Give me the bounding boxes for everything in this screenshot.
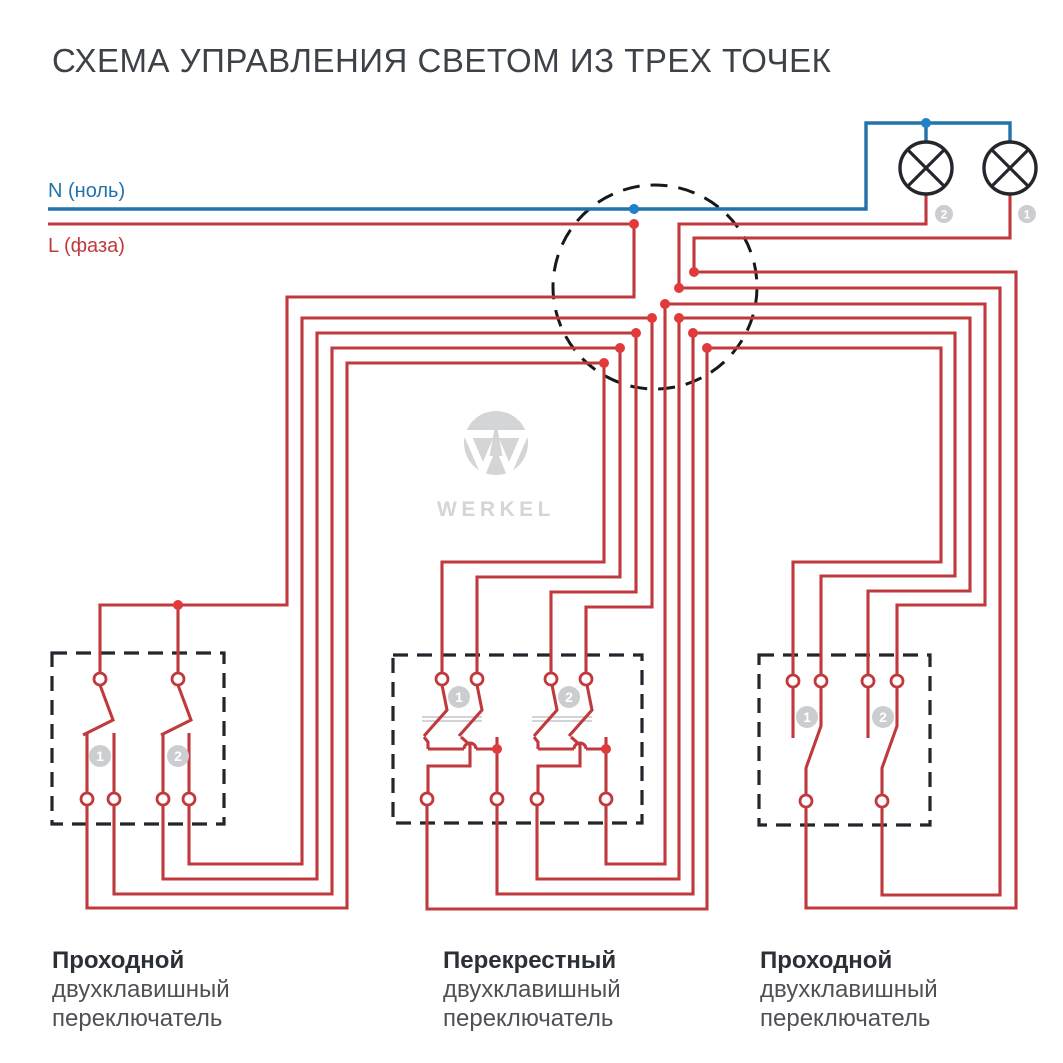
junction-dot (615, 343, 625, 353)
left-switch-caption-line2: двухклавишный (52, 975, 230, 1004)
number-badge-label: 1 (803, 709, 811, 725)
right-switch-caption-line1: Проходной (760, 946, 938, 975)
junction-dot (629, 219, 639, 229)
left-switch-caption-line3: переключатель (52, 1004, 230, 1033)
number-badge-label: 1 (1024, 207, 1031, 221)
terminal (545, 673, 557, 685)
terminal (891, 675, 903, 687)
neutral-wire-label: N (ноль) (48, 180, 125, 203)
phase-wire (534, 737, 538, 749)
middle-switch-caption-line1: Перекрестный (443, 946, 621, 975)
number-badge-label: 1 (96, 748, 104, 764)
middle-switch-caption: Перекрестный двухклавишный переключатель (443, 946, 621, 1033)
phase-wire-label: L (фаза) (48, 235, 125, 258)
werkel-logo-text: WERKEL (437, 498, 555, 521)
phase-wire (424, 685, 447, 736)
neutral-wire (48, 123, 1010, 209)
junction-dot (702, 343, 712, 353)
junction-dot-neutral (629, 204, 639, 214)
middle-switch-caption-line2: двухклавишный (443, 975, 621, 1004)
junction-dot (492, 744, 502, 754)
terminal (94, 673, 106, 685)
terminal (862, 675, 874, 687)
phase-wire (693, 333, 955, 675)
terminal (815, 675, 827, 687)
junction-dot (689, 267, 699, 277)
phase-wire (161, 685, 191, 735)
terminal (491, 793, 503, 805)
number-badge-label: 2 (879, 709, 887, 725)
terminal (81, 793, 93, 805)
terminal (800, 795, 812, 807)
junction-dot (674, 313, 684, 323)
phase-wire (665, 304, 985, 675)
number-badge-label: 1 (455, 689, 463, 705)
junction-dot (647, 313, 657, 323)
junction-dot (173, 600, 183, 610)
terminal (183, 793, 195, 805)
phase-wire (534, 685, 557, 736)
phase-wire (551, 333, 636, 673)
terminal (600, 793, 612, 805)
switch-box-0 (52, 653, 224, 824)
terminal (108, 793, 120, 805)
page-title: СХЕМА УПРАВЛЕНИЯ СВЕТОМ ИЗ ТРЕХ ТОЧЕК (52, 42, 831, 80)
phase-wire (679, 318, 970, 675)
terminal (157, 793, 169, 805)
terminal (876, 795, 888, 807)
wiring-svg: WERKEL21121212 (0, 0, 1063, 1063)
number-badge-label: 2 (941, 207, 948, 221)
terminal (787, 675, 799, 687)
left-switch-caption-line1: Проходной (52, 946, 230, 975)
page-root: { "title": "СХЕМА УПРАВЛЕНИЯ СВЕТОМ ИЗ Т… (0, 0, 1063, 1063)
number-badge-label: 2 (565, 689, 573, 705)
terminal (531, 793, 543, 805)
terminal (436, 673, 448, 685)
number-badge-label: 2 (174, 748, 182, 764)
terminal (421, 793, 433, 805)
phase-wire (806, 687, 821, 795)
junction-dot (674, 283, 684, 293)
junction-dot (660, 299, 670, 309)
right-switch-caption: Проходной двухклавишный переключатель (760, 946, 938, 1033)
junction-dot (631, 328, 641, 338)
right-switch-caption-line2: двухклавишный (760, 975, 938, 1004)
junction-dot (599, 358, 609, 368)
middle-switch-caption-line3: переключатель (443, 1004, 621, 1033)
phase-wire (424, 737, 428, 749)
terminal (172, 673, 184, 685)
left-switch-caption: Проходной двухклавишный переключатель (52, 946, 230, 1033)
phase-wire (83, 685, 113, 735)
phase-wire (882, 687, 897, 795)
terminal (471, 673, 483, 685)
phase-wire (694, 194, 1010, 272)
junction-dot (601, 744, 611, 754)
junction-dot-neutral (921, 118, 931, 128)
right-switch-caption-line3: переключатель (760, 1004, 938, 1033)
phase-wire (707, 348, 941, 675)
junction-dot (688, 328, 698, 338)
terminal (580, 673, 592, 685)
